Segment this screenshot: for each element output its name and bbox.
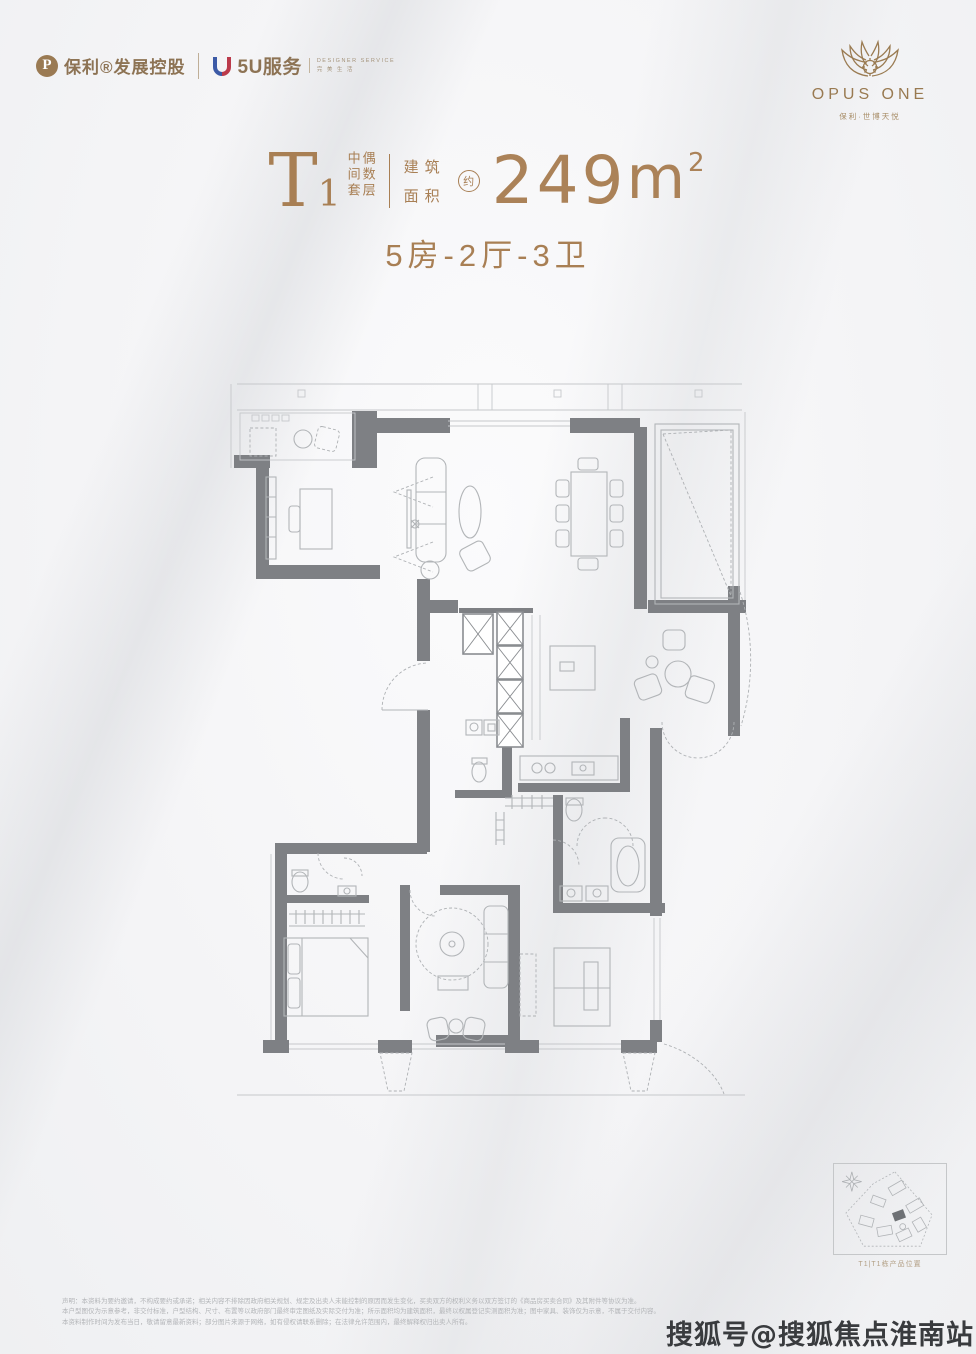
area-value-group: 249m2: [492, 148, 708, 214]
5u-tagline: DESIGNER SERVICE 完 美 生 活: [309, 58, 395, 73]
layout-summary: 5房-2厅-3卫: [0, 230, 976, 275]
area-unit: m: [627, 148, 688, 208]
brand-right: OPUS ONE 保利·世博天悦: [802, 36, 938, 122]
dining-set: [556, 458, 623, 570]
title-row: T1 中间套 偶数层 建筑 面积 约 249m2: [0, 148, 976, 214]
5u-tagline-line1: DESIGNER SERVICE: [317, 58, 395, 65]
study: [266, 477, 332, 559]
laundry-bath: [466, 720, 499, 782]
brand-divider: [198, 53, 199, 79]
area-label-line2: 面积: [404, 185, 446, 206]
opus-one-subtitle: 保利·世博天悦: [802, 111, 938, 122]
master-bathroom: [553, 798, 645, 901]
master-bedroom: [520, 948, 610, 1026]
poly-logo-text: 保利®发展控股: [64, 53, 186, 78]
compass-icon: [842, 1172, 862, 1192]
family-lounge: [633, 630, 734, 758]
exterior-lines: [382, 592, 751, 1094]
area-value: 249: [492, 148, 627, 214]
site-buildings: [859, 1180, 927, 1242]
elevator-core: [463, 612, 523, 747]
bedroom-left: [284, 853, 368, 1016]
unit-note: 中间套 偶数层: [345, 151, 375, 211]
balcony: [655, 424, 739, 604]
siteplan-box: [833, 1163, 947, 1255]
plan-outline: [231, 384, 745, 1095]
poster-root: P 保利®发展控股 5U服务 DESIGNER SERVICE 完 美 生 活: [0, 0, 976, 1354]
5u-tagline-line2: 完 美 生 活: [317, 67, 395, 74]
area-label-line1: 建筑: [404, 156, 446, 177]
foyer: [240, 413, 355, 460]
kitchen: [520, 646, 618, 780]
approx-badge: 约: [458, 170, 480, 192]
brand-left: P 保利®发展控股 5U服务 DESIGNER SERVICE 完 美 生 活: [36, 52, 395, 79]
title-divider: [389, 154, 390, 208]
opus-one-wordmark: OPUS ONE: [802, 86, 938, 104]
disclaimer-line-1: 声明：本资料为要约邀请，不构成要约或承诺；相关内容不排除因政府相关规划、规定及出…: [62, 1297, 918, 1307]
bedroom-center: [410, 890, 508, 990]
highlighted-building-t1: [892, 1209, 906, 1221]
title-block: T1 中间套 偶数层 建筑 面积 约 249m2 5房-2厅-3卫: [0, 148, 976, 275]
poly-logo-icon: P: [36, 55, 58, 77]
unit-note-col2: 偶数层: [360, 151, 375, 211]
unit-number: 1: [318, 174, 341, 215]
5u-logo-text: 5U服务: [238, 52, 302, 79]
wardrobe-hall: [496, 795, 553, 845]
phoenix-emblem-icon: [838, 36, 902, 82]
siteplan-caption: T1|T1栋产品位置: [833, 1259, 947, 1269]
unit-note-col1: 中间套: [345, 151, 360, 211]
area-label: 建筑 面积: [404, 156, 446, 206]
watermark: 搜狐号@搜狐焦点淮南站: [666, 1313, 974, 1352]
walls: [234, 411, 746, 1053]
unit-letter: T: [268, 138, 317, 224]
bay-windows: [380, 1053, 655, 1091]
unit-code: T1: [268, 150, 340, 213]
living-room: [407, 458, 492, 579]
floorplan-drawing: [228, 378, 752, 1100]
5u-logo-icon: [211, 55, 233, 77]
area-sup: 2: [688, 150, 708, 176]
